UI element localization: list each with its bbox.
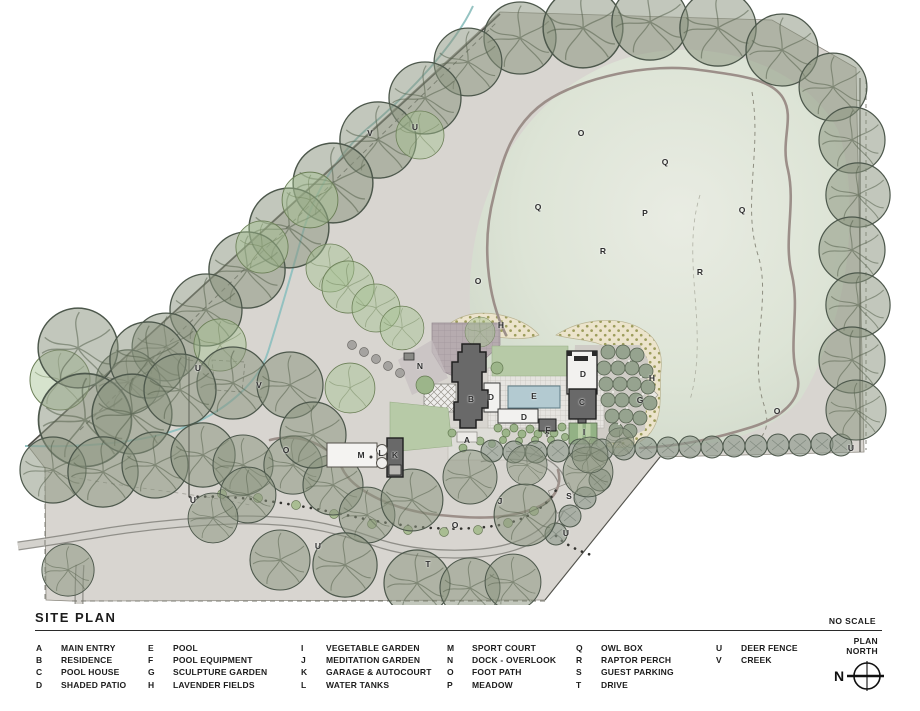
main-entry xyxy=(457,432,477,442)
legend-item-F: FPOOL EQUIPMENT xyxy=(148,654,267,666)
legend-key: O xyxy=(447,667,472,677)
legend-item-N: NDOCK - OVERLOOK xyxy=(447,654,556,666)
legend-label: DRIVE xyxy=(601,680,628,690)
legend-item-M: MSPORT COURT xyxy=(447,642,556,654)
legend-label: SHADED PATIO xyxy=(61,680,126,690)
legend-key: B xyxy=(36,655,61,665)
legend-key: D xyxy=(36,680,61,690)
legend-column-1: AMAIN ENTRYBRESIDENCECPOOL HOUSEDSHADED … xyxy=(36,642,126,691)
legend-key: Q xyxy=(576,643,601,653)
pool-equipment xyxy=(539,419,556,431)
legend-key: P xyxy=(447,680,472,690)
legend-key: A xyxy=(36,643,61,653)
title-rule xyxy=(35,630,882,631)
legend-item-L: LWATER TANKS xyxy=(301,679,432,691)
legend-label: DEER FENCE xyxy=(741,643,798,653)
site-plan-sheet: VUOQQPQRROHNUVBDEDCDFAIGHOUOMLKJSUUUTO S… xyxy=(0,0,920,711)
legend-item-J: JMEDITATION GARDEN xyxy=(301,654,432,666)
legend-item-U: UDEER FENCE xyxy=(716,642,798,654)
site-plan-drawing xyxy=(0,0,920,605)
legend-label: OWL BOX xyxy=(601,643,643,653)
lawn-north xyxy=(492,346,568,376)
sport-court xyxy=(327,443,377,467)
legend-key: K xyxy=(301,667,326,677)
legend-column-2: EPOOLFPOOL EQUIPMENTGSCULPTURE GARDENHLA… xyxy=(148,642,267,691)
pool xyxy=(508,386,560,408)
legend-column-4: MSPORT COURTNDOCK - OVERLOOKOFOOT PATHPM… xyxy=(447,642,556,691)
legend-item-G: GSCULPTURE GARDEN xyxy=(148,666,267,678)
legend-label: LAVENDER FIELDS xyxy=(173,680,255,690)
water-tank xyxy=(377,458,388,469)
north-letter: N xyxy=(834,668,844,684)
legend-item-K: KGARAGE & AUTOCOURT xyxy=(301,666,432,678)
pool-house xyxy=(569,389,596,419)
legend-label: GUEST PARKING xyxy=(601,667,674,677)
legend-key: E xyxy=(148,643,173,653)
dock-overlook xyxy=(404,353,414,360)
legend-item-S: SGUEST PARKING xyxy=(576,666,674,678)
legend-item-Q: QOWL BOX xyxy=(576,642,674,654)
legend-label: CREEK xyxy=(741,655,772,665)
legend-key: R xyxy=(576,655,601,665)
legend-label: FOOT PATH xyxy=(472,667,522,677)
legend-key: T xyxy=(576,680,601,690)
legend-item-I: IVEGETABLE GARDEN xyxy=(301,642,432,654)
legend-label: GARAGE & AUTOCOURT xyxy=(326,667,432,677)
legend-key: J xyxy=(301,655,326,665)
legend-label: RESIDENCE xyxy=(61,655,112,665)
shaded-patio-pool xyxy=(498,409,538,423)
legend-key: V xyxy=(716,655,741,665)
legend-label: POOL EQUIPMENT xyxy=(173,655,253,665)
legend: AMAIN ENTRYBRESIDENCECPOOL HOUSEDSHADED … xyxy=(0,642,920,702)
legend-column-5: QOWL BOXRRAPTOR PERCHSGUEST PARKINGTDRIV… xyxy=(576,642,674,691)
legend-key: U xyxy=(716,643,741,653)
legend-label: SCULPTURE GARDEN xyxy=(173,667,267,677)
legend-item-O: OFOOT PATH xyxy=(447,666,556,678)
legend-item-P: PMEADOW xyxy=(447,679,556,691)
north-arrow-icon: N xyxy=(832,656,888,694)
legend-key: H xyxy=(148,680,173,690)
legend-label: MEDITATION GARDEN xyxy=(326,655,420,665)
scale-note: NO SCALE xyxy=(829,616,876,626)
plan-north-label: PLAN NORTH xyxy=(846,637,878,657)
legend-key: I xyxy=(301,643,326,653)
residence xyxy=(452,344,488,428)
legend-label: POOL HOUSE xyxy=(61,667,120,677)
legend-label: RAPTOR PERCH xyxy=(601,655,671,665)
legend-label: MAIN ENTRY xyxy=(61,643,116,653)
legend-key: F xyxy=(148,655,173,665)
plan-drawing-area: VUOQQPQRROHNUVBDEDCDFAIGHOUOMLKJSUUUTO xyxy=(0,0,920,605)
water-tank xyxy=(377,445,388,456)
legend-label: DOCK - OVERLOOK xyxy=(472,655,556,665)
legend-item-B: BRESIDENCE xyxy=(36,654,126,666)
legend-item-R: RRAPTOR PERCH xyxy=(576,654,674,666)
legend-label: SPORT COURT xyxy=(472,643,536,653)
page-title: SITE PLAN xyxy=(35,610,116,625)
legend-key: N xyxy=(447,655,472,665)
legend-key: L xyxy=(301,680,326,690)
legend-label: MEADOW xyxy=(472,680,513,690)
legend-item-A: AMAIN ENTRY xyxy=(36,642,126,654)
legend-label: POOL xyxy=(173,643,198,653)
legend-label: VEGETABLE GARDEN xyxy=(326,643,420,653)
legend-label: WATER TANKS xyxy=(326,680,389,690)
legend-item-H: HLAVENDER FIELDS xyxy=(148,679,267,691)
legend-column-6: UDEER FENCEVCREEK xyxy=(716,642,798,666)
legend-column-3: IVEGETABLE GARDENJMEDITATION GARDENKGARA… xyxy=(301,642,432,691)
legend-key: C xyxy=(36,667,61,677)
legend-key: S xyxy=(576,667,601,677)
legend-key: G xyxy=(148,667,173,677)
legend-item-D: DSHADED PATIO xyxy=(36,679,126,691)
legend-item-C: CPOOL HOUSE xyxy=(36,666,126,678)
legend-item-E: EPOOL xyxy=(148,642,267,654)
legend-item-T: TDRIVE xyxy=(576,679,674,691)
legend-item-V: VCREEK xyxy=(716,654,798,666)
legend-key: M xyxy=(447,643,472,653)
